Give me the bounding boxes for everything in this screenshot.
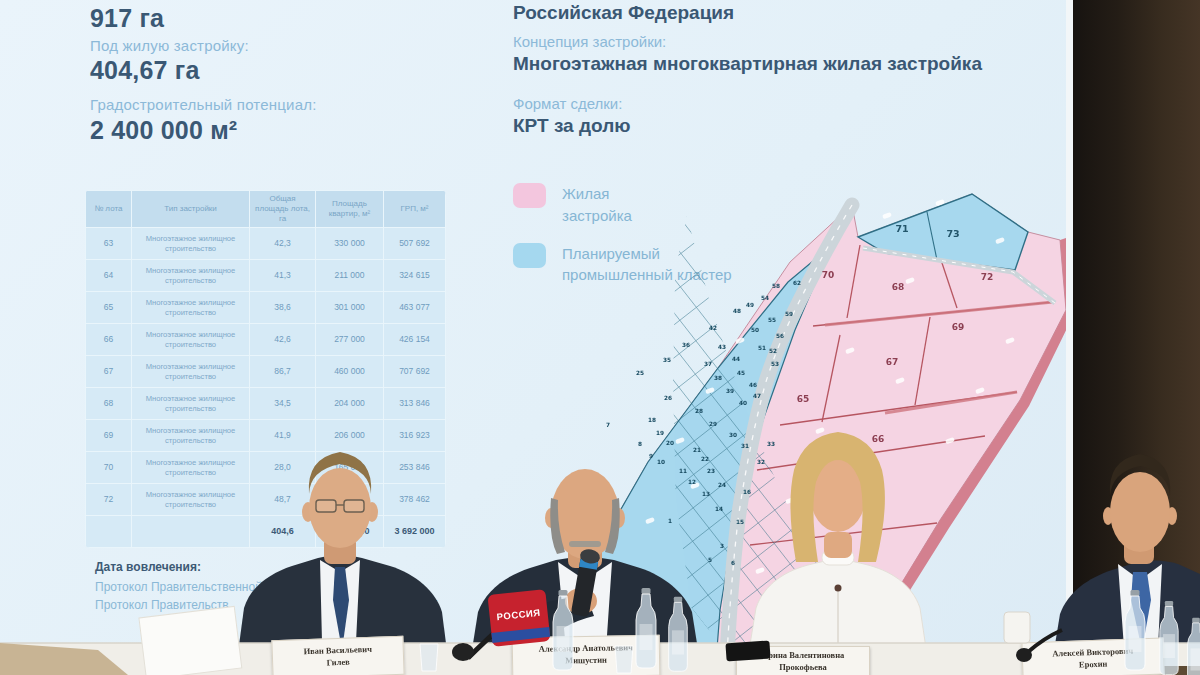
mic-flag: РОССИЯ <box>487 589 550 647</box>
recorder-box <box>725 640 770 661</box>
mic-foam-icon <box>452 643 474 661</box>
water-bottle <box>553 590 573 670</box>
water-bottle <box>1125 590 1145 670</box>
water-bottle <box>669 597 688 671</box>
drinking-glass <box>615 646 633 673</box>
water-bottle <box>1160 601 1178 675</box>
water-bottle <box>636 588 656 668</box>
drinking-glass <box>420 644 438 671</box>
water-bottle <box>1188 618 1200 675</box>
press-conference-photo: 917 га Под жилую застройку: 404,67 га Гр… <box>0 0 1200 675</box>
paper-cup <box>1004 612 1030 643</box>
press-microphone: РОССИЯ <box>452 589 551 661</box>
